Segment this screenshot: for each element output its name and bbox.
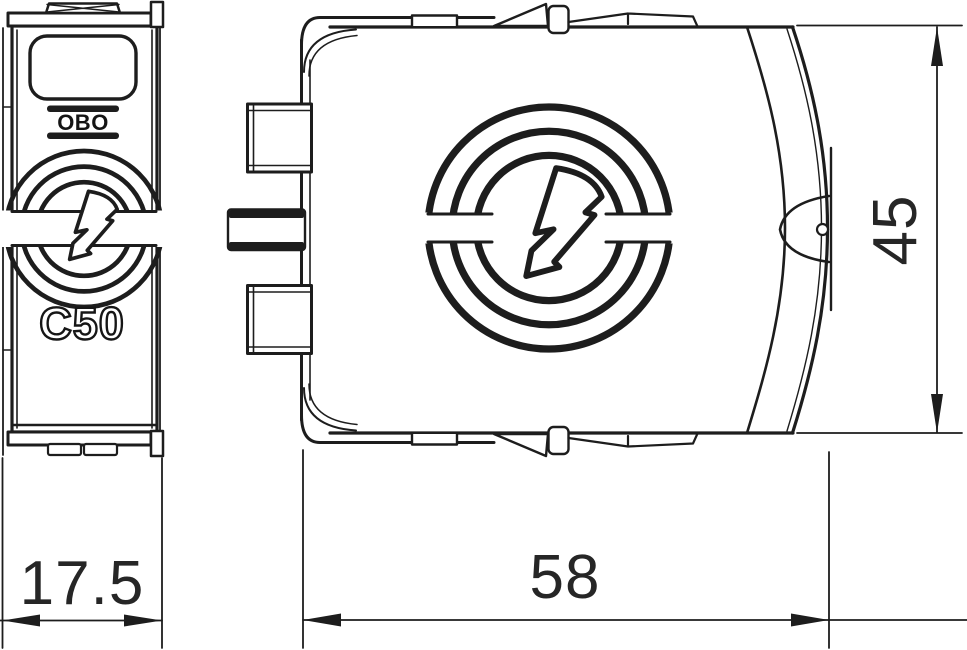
- side-top-step: [569, 14, 698, 27]
- connector-pin-middle: [228, 210, 305, 251]
- product-code-text: C50: [39, 298, 125, 349]
- front-top-cap: [8, 13, 151, 26]
- brand-logo-bottom-bar: [47, 133, 119, 140]
- side-bottom-ledge: [302, 415, 495, 443]
- side-height-arrow-bottom: [931, 394, 943, 433]
- dimension-side-width: 58: [303, 450, 967, 648]
- side-view: [228, 4, 831, 456]
- side-latch-pin-hole: [817, 224, 828, 235]
- side-width-value: 58: [530, 543, 601, 612]
- connector-terminal-bottom: [248, 286, 312, 354]
- side-height-value: 45: [861, 195, 930, 266]
- side-top-ledge: [302, 18, 495, 46]
- side-top-clip-tab: [549, 6, 569, 33]
- side-top-clip-wedge: [494, 4, 548, 26]
- side-width-arrow-left: [303, 614, 341, 627]
- side-bottom-corner-outer: [304, 388, 356, 431]
- front-view: OBO C50: [2, 2, 167, 456]
- side-height-arrow-top: [931, 27, 943, 66]
- side-bottom-step: [569, 434, 698, 447]
- dimension-front-width: 17.5: [0, 458, 162, 648]
- brand-logo: OBO: [47, 106, 119, 140]
- side-bottom-clip-tab: [549, 427, 569, 454]
- front-width-value: 17.5: [20, 549, 145, 618]
- brand-logo-text: OBO: [57, 110, 109, 135]
- technical-drawing-page: OBO C50: [0, 0, 967, 650]
- side-top-corner-outer: [304, 30, 356, 73]
- side-top-notch: [412, 16, 457, 27]
- front-bottom-foot-left: [48, 444, 81, 455]
- front-top-right-tab: [151, 2, 163, 27]
- front-bottom-right-tab: [151, 431, 163, 456]
- technical-drawing-canvas: OBO C50: [0, 0, 967, 650]
- side-width-arrow-right: [791, 614, 829, 627]
- surge-arrester-logo-icon: [424, 107, 676, 349]
- label-window: [30, 36, 136, 99]
- connector-terminal-top: [248, 104, 312, 172]
- front-bottom-foot-right: [84, 444, 117, 455]
- side-bottom-clip-wedge: [494, 434, 548, 456]
- side-bottom-notch: [412, 434, 457, 445]
